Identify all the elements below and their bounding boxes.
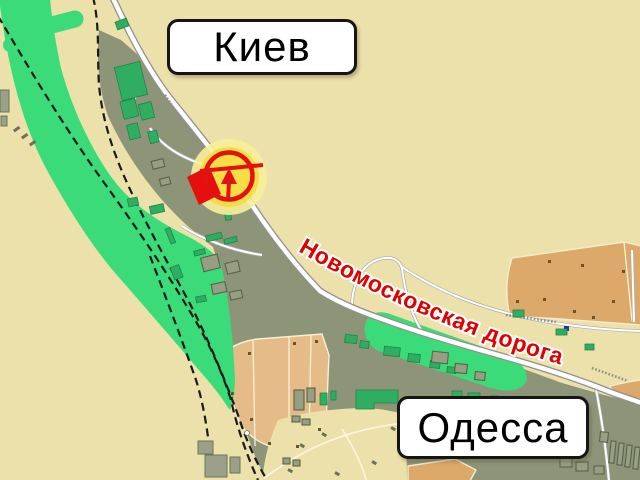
sign-kiev-label: Киев	[213, 23, 311, 71]
sign-kiev: Киев	[167, 19, 357, 75]
sign-odessa-label: Одесса	[418, 404, 569, 452]
sign-odessa: Одесса	[397, 396, 589, 459]
marker-arrow-stem	[228, 182, 229, 200]
waste-field	[262, 408, 407, 480]
map-viewport[interactable]: Новомосковская дорога Киев Одесса	[0, 0, 640, 480]
railway-signal-dot	[245, 431, 250, 436]
green-corridor-branch	[48, 19, 75, 26]
